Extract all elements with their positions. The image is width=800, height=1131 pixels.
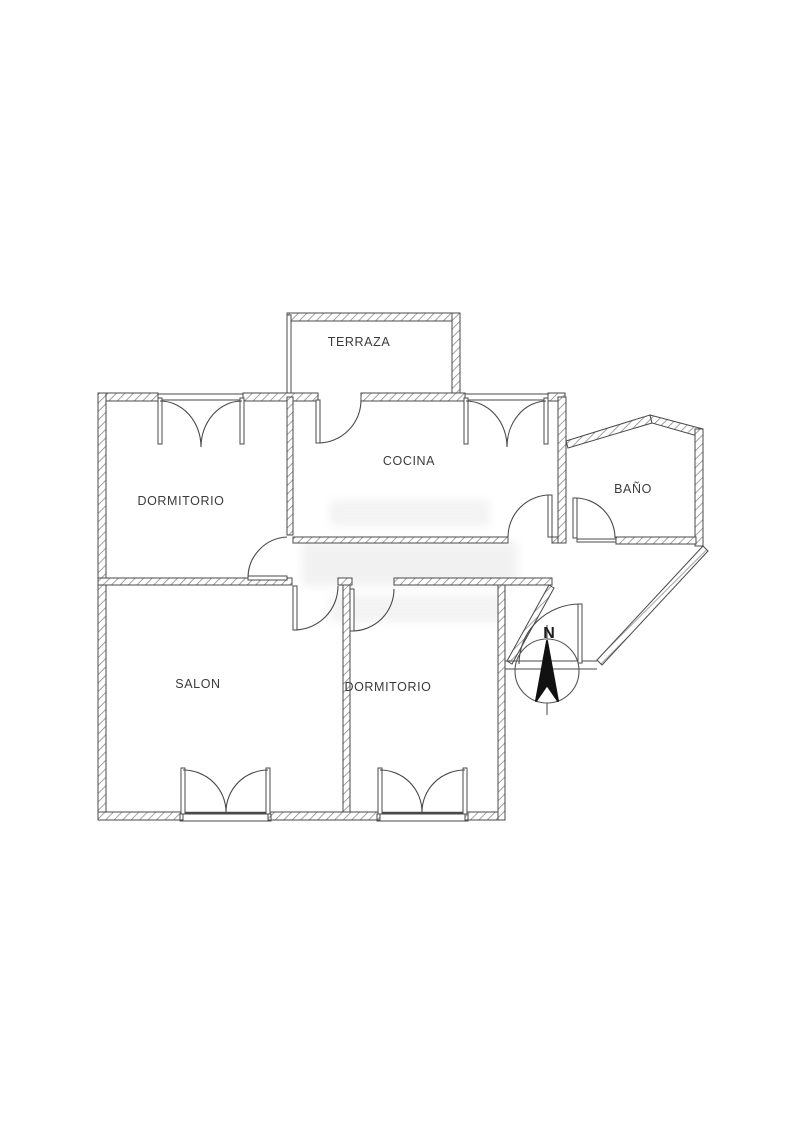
wall-cocina-right: [558, 397, 566, 543]
wall-bottom-outer-a: [98, 812, 183, 820]
window-jamb: [266, 768, 270, 814]
door-leaf-terraza: [316, 400, 320, 443]
door-leaf-dorm2: [350, 589, 354, 631]
window-sill-salon: [180, 814, 271, 821]
room-label-dormitorio-2: DORMITORIO: [344, 680, 431, 694]
wall-cocina-south-a: [293, 537, 508, 543]
wall-corridor-south-c: [394, 578, 552, 585]
wall-top-outer-a: [98, 393, 158, 401]
bano-door-threshold: [577, 539, 616, 542]
room-label-dormitorio-1: DORMITORIO: [137, 494, 224, 508]
window-arcs-dorm1: [160, 401, 242, 447]
floor-plan-page: N TERRAZA DORMITORIO COCINA BAÑO SALON D…: [0, 0, 800, 1131]
window-frame-cocina: [465, 394, 548, 400]
door-leaf-bano: [573, 498, 577, 538]
floor-plan-drawing: N TERRAZA DORMITORIO COCINA BAÑO SALON D…: [0, 0, 800, 1131]
window-jamb: [463, 768, 467, 814]
door-arc-bano: [575, 498, 615, 538]
window-arcs-dorm2: [380, 770, 465, 812]
wall-left-outer: [98, 393, 106, 820]
window-sill-dorm2: [377, 814, 468, 821]
door-leaf-entrance: [578, 604, 582, 663]
wall-dorm2-right: [498, 585, 505, 820]
wall-terraza-right: [452, 313, 460, 395]
wall-bano-right: [695, 429, 703, 546]
wall-bano-diag-left: [566, 415, 652, 448]
window-jamb: [464, 398, 468, 444]
window-jamb: [240, 398, 244, 444]
wall-top-outer-b: [243, 393, 318, 401]
room-label-terraza: TERRAZA: [328, 335, 391, 349]
compass-needle: [536, 641, 558, 701]
door-leaf-cocina: [548, 495, 552, 537]
window-jamb: [158, 398, 162, 444]
window-arcs-salon: [183, 770, 268, 812]
door-arc-cocina: [508, 495, 550, 537]
door-leaf-salon: [293, 586, 297, 630]
door-arc-terraza: [318, 400, 361, 443]
wall-terraza-left: [287, 315, 291, 395]
wall-entry-diagonal-outer: [597, 546, 708, 665]
window-jamb: [544, 398, 548, 444]
wall-salon-dorm2-divider: [343, 585, 350, 812]
window-frame-dorm1: [158, 394, 243, 400]
room-label-salon: SALON: [175, 677, 220, 691]
wall-top-outer-c: [361, 393, 465, 401]
room-label-cocina: COCINA: [383, 454, 435, 468]
door-leaf-dorm1: [248, 576, 287, 580]
door-arc-dorm1: [248, 537, 287, 578]
window-jamb: [378, 768, 382, 814]
wall-bano-south: [616, 537, 696, 544]
room-label-bano: BAÑO: [614, 482, 652, 496]
compass-center-dot: [547, 671, 550, 674]
compass-north-label: N: [543, 625, 555, 642]
wall-dorm1-right: [287, 397, 293, 535]
wall-bottom-outer-b: [268, 812, 380, 820]
wall-corridor-south-b: [338, 578, 352, 585]
wall-terraza-top: [287, 313, 460, 321]
window-arcs-cocina: [466, 401, 546, 447]
window-jamb: [181, 768, 185, 814]
